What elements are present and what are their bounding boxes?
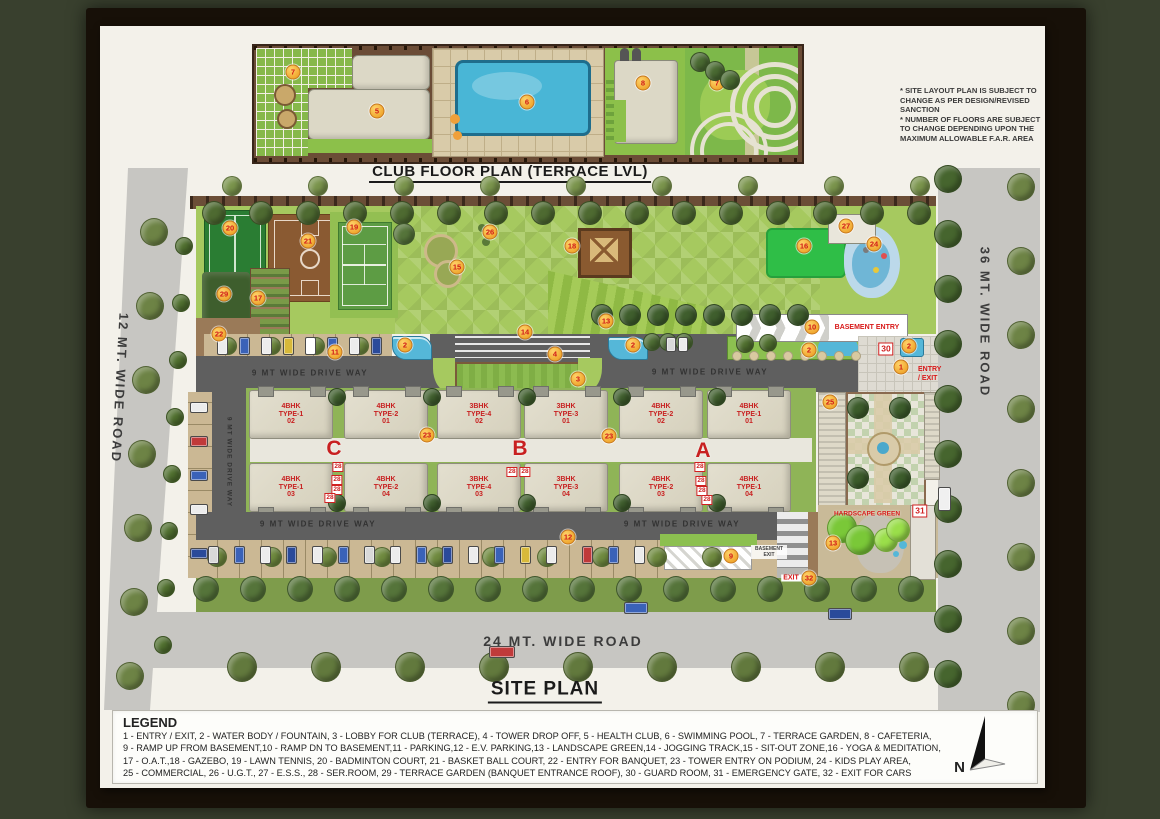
tower-building: 4BHK TYPE-1 03 xyxy=(249,463,333,512)
tree xyxy=(625,201,649,225)
car xyxy=(283,337,294,355)
tree xyxy=(851,576,877,602)
tree xyxy=(759,304,781,326)
club-terrace-garden-mid xyxy=(308,48,352,88)
tree xyxy=(569,576,595,602)
roof-core xyxy=(585,386,601,397)
marker-16: 16 xyxy=(797,239,812,254)
car xyxy=(468,546,479,564)
tree xyxy=(154,636,172,654)
tower-building: 4BHK TYPE-1 02 xyxy=(249,390,333,439)
tree xyxy=(719,201,743,225)
label-box-31: 31 xyxy=(912,505,927,518)
car xyxy=(546,546,557,564)
tree xyxy=(934,220,962,248)
entry-exit-label: ENTRY / EXIT xyxy=(918,366,941,383)
driveway-label-top-left: 9 MT WIDE DRIVE WAY xyxy=(252,369,368,378)
car xyxy=(634,546,645,564)
marker-2: 2 xyxy=(398,338,413,353)
tree xyxy=(140,218,168,246)
marker-24: 24 xyxy=(867,237,882,252)
tower-building: 3BHK TYPE-3 01 xyxy=(524,390,608,439)
car xyxy=(390,546,401,564)
marker-32: 32 xyxy=(802,571,817,586)
disclaimer: * SITE LAYOUT PLAN IS SUBJECT TOCHANGE A… xyxy=(900,86,1050,144)
car xyxy=(494,546,505,564)
tree xyxy=(1007,617,1035,645)
tree xyxy=(518,388,536,406)
cafeteria-door-2 xyxy=(632,48,641,61)
banquet-ramp-lawn xyxy=(660,534,757,546)
tree xyxy=(647,547,667,567)
marker-19: 19 xyxy=(347,220,362,235)
driveway-label-bottom-right: 9 MT WIDE DRIVE WAY xyxy=(624,520,740,529)
legend-line: 9 - RAMP UP FROM BASEMENT,10 - RAMP DN T… xyxy=(123,742,1027,754)
marker-11: 11 xyxy=(328,345,343,360)
exit-crossing xyxy=(777,512,808,568)
basement-exit-label: BASEMENT EXIT xyxy=(751,545,787,559)
car xyxy=(312,546,323,564)
tree xyxy=(652,176,672,196)
tree xyxy=(675,304,697,326)
car xyxy=(364,546,375,564)
marker-14: 14 xyxy=(518,325,533,340)
driveway-label-left-vertical: 9 MT WIDE DRIVE WAY xyxy=(226,417,233,507)
basketball-key-bottom xyxy=(301,280,319,296)
amphitheatre-arc-3 xyxy=(754,86,796,128)
legend: LEGEND 1 - ENTRY / EXIT, 2 - WATER BODY … xyxy=(112,710,1038,784)
car xyxy=(190,470,208,481)
tree xyxy=(847,397,869,419)
tree xyxy=(163,465,181,483)
roof-core xyxy=(353,386,369,397)
tree xyxy=(934,440,962,468)
tree xyxy=(136,292,164,320)
tree xyxy=(703,304,725,326)
marker-25: 25 xyxy=(823,395,838,410)
stepping-stone xyxy=(732,351,742,361)
legend-line: 1 - ENTRY / EXIT, 2 - WATER BODY / FOUNT… xyxy=(123,730,1027,742)
building-label: 3BHK TYPE-4 02 xyxy=(438,391,520,438)
screenshot-root: 75687 CLUB FLOOR PLAN (TERRACE LVL) * SI… xyxy=(0,0,1160,819)
marker-20: 20 xyxy=(223,221,238,236)
car xyxy=(371,337,382,355)
tree xyxy=(202,201,226,225)
tree xyxy=(428,576,454,602)
car xyxy=(234,546,245,564)
car xyxy=(828,608,852,620)
car xyxy=(349,337,360,355)
health-club-upper-block xyxy=(352,55,430,90)
tree xyxy=(619,304,641,326)
tree xyxy=(1007,247,1035,275)
tree xyxy=(710,576,736,602)
tree xyxy=(824,176,844,196)
tree xyxy=(934,550,962,578)
roof-core xyxy=(405,386,421,397)
disclaimer-line: * NUMBER OF FLOORS ARE SUBJECT xyxy=(900,115,1050,125)
tree xyxy=(907,201,931,225)
tree xyxy=(738,176,758,196)
marker-26: 26 xyxy=(483,225,498,240)
tree xyxy=(813,201,837,225)
car xyxy=(666,337,676,352)
car xyxy=(190,436,208,447)
marker-22: 22 xyxy=(212,327,227,342)
tree xyxy=(423,388,441,406)
hardscape-green-label: HARDSCAPE GREEN xyxy=(834,511,900,518)
marker-3: 3 xyxy=(571,372,586,387)
tree xyxy=(249,201,273,225)
disclaimer-line: MAXIMUM ALLOWABLE F.A.R. AREA xyxy=(900,134,1050,144)
roof-core xyxy=(768,386,784,397)
tree xyxy=(480,176,500,196)
road-label-bottom: 24 MT. WIDE ROAD xyxy=(483,633,643,649)
pool-lounger-2 xyxy=(453,131,462,140)
tree xyxy=(757,576,783,602)
tree xyxy=(934,385,962,413)
marker-10: 10 xyxy=(805,320,820,335)
building-label: 4BHK TYPE-1 02 xyxy=(250,391,332,438)
tree xyxy=(308,176,328,196)
tree xyxy=(222,176,242,196)
tree xyxy=(860,201,884,225)
tree xyxy=(899,652,929,682)
pool-lounger-1 xyxy=(450,114,460,124)
tree xyxy=(372,547,392,567)
cafeteria-notch xyxy=(614,100,626,142)
roof-core xyxy=(446,386,462,397)
tree xyxy=(731,304,753,326)
tree xyxy=(175,237,193,255)
label-box-28: 28 xyxy=(506,467,517,477)
tree xyxy=(484,201,508,225)
marker-7: 7 xyxy=(286,65,301,80)
tower-building: 4BHK TYPE-2 01 xyxy=(344,390,428,439)
tree xyxy=(423,494,441,512)
tree xyxy=(394,176,414,196)
car xyxy=(582,546,593,564)
marker-17: 17 xyxy=(251,291,266,306)
tree xyxy=(720,70,740,90)
car xyxy=(190,548,208,559)
tree xyxy=(475,576,501,602)
car xyxy=(416,546,427,564)
legend-heading: LEGEND xyxy=(123,715,177,730)
label-box-28: 28 xyxy=(331,475,342,485)
tree xyxy=(613,388,631,406)
roof-core xyxy=(310,386,326,397)
gazebo-mat xyxy=(590,238,618,262)
tree xyxy=(311,652,341,682)
tree xyxy=(172,294,190,312)
tree xyxy=(759,334,777,352)
car xyxy=(520,546,531,564)
club-gazebo-2 xyxy=(277,109,297,129)
tennis-center-line xyxy=(364,244,365,285)
tree xyxy=(647,304,669,326)
building-label: 3BHK TYPE-3 04 xyxy=(525,464,607,511)
tree xyxy=(934,605,962,633)
tower-building: 3BHK TYPE-4 02 xyxy=(437,390,521,439)
tree xyxy=(390,201,414,225)
disclaimer-line: SANCTION xyxy=(900,105,1050,115)
play-equipment-red xyxy=(881,253,887,259)
road-label-right: 36 MT. WIDE ROAD xyxy=(978,247,993,397)
building-label: 4BHK TYPE-2 03 xyxy=(620,464,702,511)
tree xyxy=(578,201,602,225)
marker-1: 1 xyxy=(894,360,909,375)
gazebo-pergola xyxy=(578,228,632,278)
building-label: 4BHK TYPE-2 02 xyxy=(620,391,702,438)
car xyxy=(938,487,951,511)
tree xyxy=(1007,395,1035,423)
tree xyxy=(128,440,156,468)
tree xyxy=(328,388,346,406)
building-label: 4BHK TYPE-2 04 xyxy=(345,464,427,511)
label-box-28: 28 xyxy=(694,462,705,472)
north-label: N xyxy=(954,759,965,776)
tree xyxy=(166,408,184,426)
marker-2: 2 xyxy=(902,339,917,354)
tree xyxy=(116,662,144,690)
stepping-stone xyxy=(817,351,827,361)
roof-core xyxy=(498,386,514,397)
stepping-stone xyxy=(851,351,861,361)
tree xyxy=(240,576,266,602)
roof-core xyxy=(258,386,274,397)
marker-23: 23 xyxy=(602,429,617,444)
car xyxy=(624,602,648,614)
tower-letter-A: A xyxy=(695,439,710,463)
tree xyxy=(132,366,160,394)
tree xyxy=(898,576,924,602)
tower-building: 4BHK TYPE-2 04 xyxy=(344,463,428,512)
stepping-stone xyxy=(834,351,844,361)
stepping-stone xyxy=(749,351,759,361)
tree xyxy=(889,397,911,419)
marker-2: 2 xyxy=(802,343,817,358)
tree xyxy=(934,660,962,688)
marker-12: 12 xyxy=(561,530,576,545)
tree xyxy=(731,652,761,682)
club-wall-ticks-bottom xyxy=(254,158,802,162)
basement-entry-label: BASEMENT ENTRY xyxy=(829,318,905,336)
tree xyxy=(437,201,461,225)
tree xyxy=(1007,469,1035,497)
tree xyxy=(120,588,148,616)
building-label: 4BHK TYPE-1 03 xyxy=(250,464,332,511)
marker-23: 23 xyxy=(420,428,435,443)
tree xyxy=(934,330,962,358)
tree xyxy=(157,579,175,597)
marker-15: 15 xyxy=(450,260,465,275)
car xyxy=(261,337,272,355)
stepping-stone xyxy=(783,351,793,361)
fountain-basin xyxy=(877,442,889,454)
marker-5: 5 xyxy=(370,104,385,119)
car xyxy=(190,504,208,515)
label-box-30: 30 xyxy=(878,343,893,356)
tree xyxy=(934,165,962,193)
tree xyxy=(334,576,360,602)
label-box-28: 28 xyxy=(324,493,335,503)
basement-exit-line2: EXIT xyxy=(751,552,787,558)
label-box-28: 28 xyxy=(332,462,343,472)
tree xyxy=(847,467,869,489)
tree xyxy=(296,201,320,225)
tree xyxy=(934,275,962,303)
tree xyxy=(563,652,593,682)
tree xyxy=(910,176,930,196)
stepping-stone xyxy=(766,351,776,361)
tree xyxy=(708,388,726,406)
building-label: 3BHK TYPE-3 01 xyxy=(525,391,607,438)
car xyxy=(338,546,349,564)
marker-18: 18 xyxy=(565,239,580,254)
marker-29: 29 xyxy=(217,287,232,302)
driveway-label-top-right: 9 MT WIDE DRIVE WAY xyxy=(652,368,768,377)
tower-letter-C: C xyxy=(326,437,341,461)
marker-9: 9 xyxy=(724,549,739,564)
tree xyxy=(702,547,722,567)
tree xyxy=(381,576,407,602)
entry-exit-line1: ENTRY xyxy=(918,366,941,375)
tree xyxy=(395,652,425,682)
tree xyxy=(124,514,152,542)
tree xyxy=(518,494,536,512)
tree xyxy=(566,176,586,196)
car xyxy=(442,546,453,564)
exit-cars-label: EXIT xyxy=(781,575,801,582)
health-club-lower-block xyxy=(308,89,430,140)
tree xyxy=(613,494,631,512)
tennis-court xyxy=(338,222,392,310)
tower-building: 4BHK TYPE-2 02 xyxy=(619,390,703,439)
hardscape-pond-2 xyxy=(893,551,899,557)
tree xyxy=(889,467,911,489)
club-gazebo-1 xyxy=(274,84,296,106)
tree xyxy=(647,652,677,682)
car xyxy=(608,546,619,564)
marker-6: 6 xyxy=(520,95,535,110)
marker-4: 4 xyxy=(548,347,563,362)
roof-core xyxy=(680,386,696,397)
tower-building: 4BHK TYPE-2 03 xyxy=(619,463,703,512)
marker-21: 21 xyxy=(301,234,316,249)
play-equipment-yellow xyxy=(873,267,879,273)
disclaimer-line: TO CHANGE DEPENDING UPON THE xyxy=(900,124,1050,134)
car xyxy=(305,337,316,355)
legend-line: 17 - O.A.T.,18 - GAZEBO, 19 - LAWN TENNI… xyxy=(123,755,1027,767)
car xyxy=(286,546,297,564)
car xyxy=(190,402,208,413)
tree xyxy=(393,223,415,245)
tree xyxy=(845,525,875,555)
legend-line: 25 - COMMERCIAL, 26 - U.G.T., 27 - E.S.S… xyxy=(123,767,1027,779)
car xyxy=(239,337,250,355)
hardscape-pond-1 xyxy=(899,541,907,549)
tree xyxy=(193,576,219,602)
driveway-label-bottom-left: 9 MT WIDE DRIVE WAY xyxy=(260,520,376,529)
building-label: 4BHK TYPE-2 01 xyxy=(345,391,427,438)
disclaimer-line: * SITE LAYOUT PLAN IS SUBJECT TO xyxy=(900,86,1050,96)
basketball-center-circle xyxy=(300,249,320,269)
label-box-28: 28 xyxy=(519,467,530,477)
tree xyxy=(531,201,555,225)
tree xyxy=(616,576,642,602)
tree xyxy=(663,576,689,602)
tree xyxy=(1007,173,1035,201)
cafeteria-door-1 xyxy=(620,48,629,61)
entry-exit-line2: / EXIT xyxy=(918,375,941,384)
marker-2: 2 xyxy=(626,338,641,353)
tree xyxy=(1007,321,1035,349)
tree xyxy=(169,351,187,369)
marker-13: 13 xyxy=(826,536,841,551)
car xyxy=(208,546,219,564)
tower-letter-B: B xyxy=(512,437,527,461)
legend-lines: 1 - ENTRY / EXIT, 2 - WATER BODY / FOUNT… xyxy=(123,730,1027,780)
label-box-28: 28 xyxy=(701,495,712,505)
tree xyxy=(287,576,313,602)
tree xyxy=(1007,543,1035,571)
tree xyxy=(672,201,696,225)
tree xyxy=(522,576,548,602)
tree xyxy=(160,522,178,540)
disclaimer-line: CHANGE AS PER DESIGN/REVISED xyxy=(900,96,1050,106)
label-box-28: 28 xyxy=(695,476,706,486)
car xyxy=(678,337,688,352)
marker-8: 8 xyxy=(636,76,651,91)
tennis-court-lines xyxy=(342,226,388,306)
marker-27: 27 xyxy=(839,219,854,234)
tree xyxy=(227,652,257,682)
marker-13: 13 xyxy=(599,314,614,329)
car xyxy=(260,546,271,564)
site-plan-title: SITE PLAN xyxy=(488,679,602,704)
tree xyxy=(766,201,790,225)
commercial-block xyxy=(818,392,846,507)
tree xyxy=(815,652,845,682)
tower-building: 3BHK TYPE-3 04 xyxy=(524,463,608,512)
tree xyxy=(886,518,910,542)
